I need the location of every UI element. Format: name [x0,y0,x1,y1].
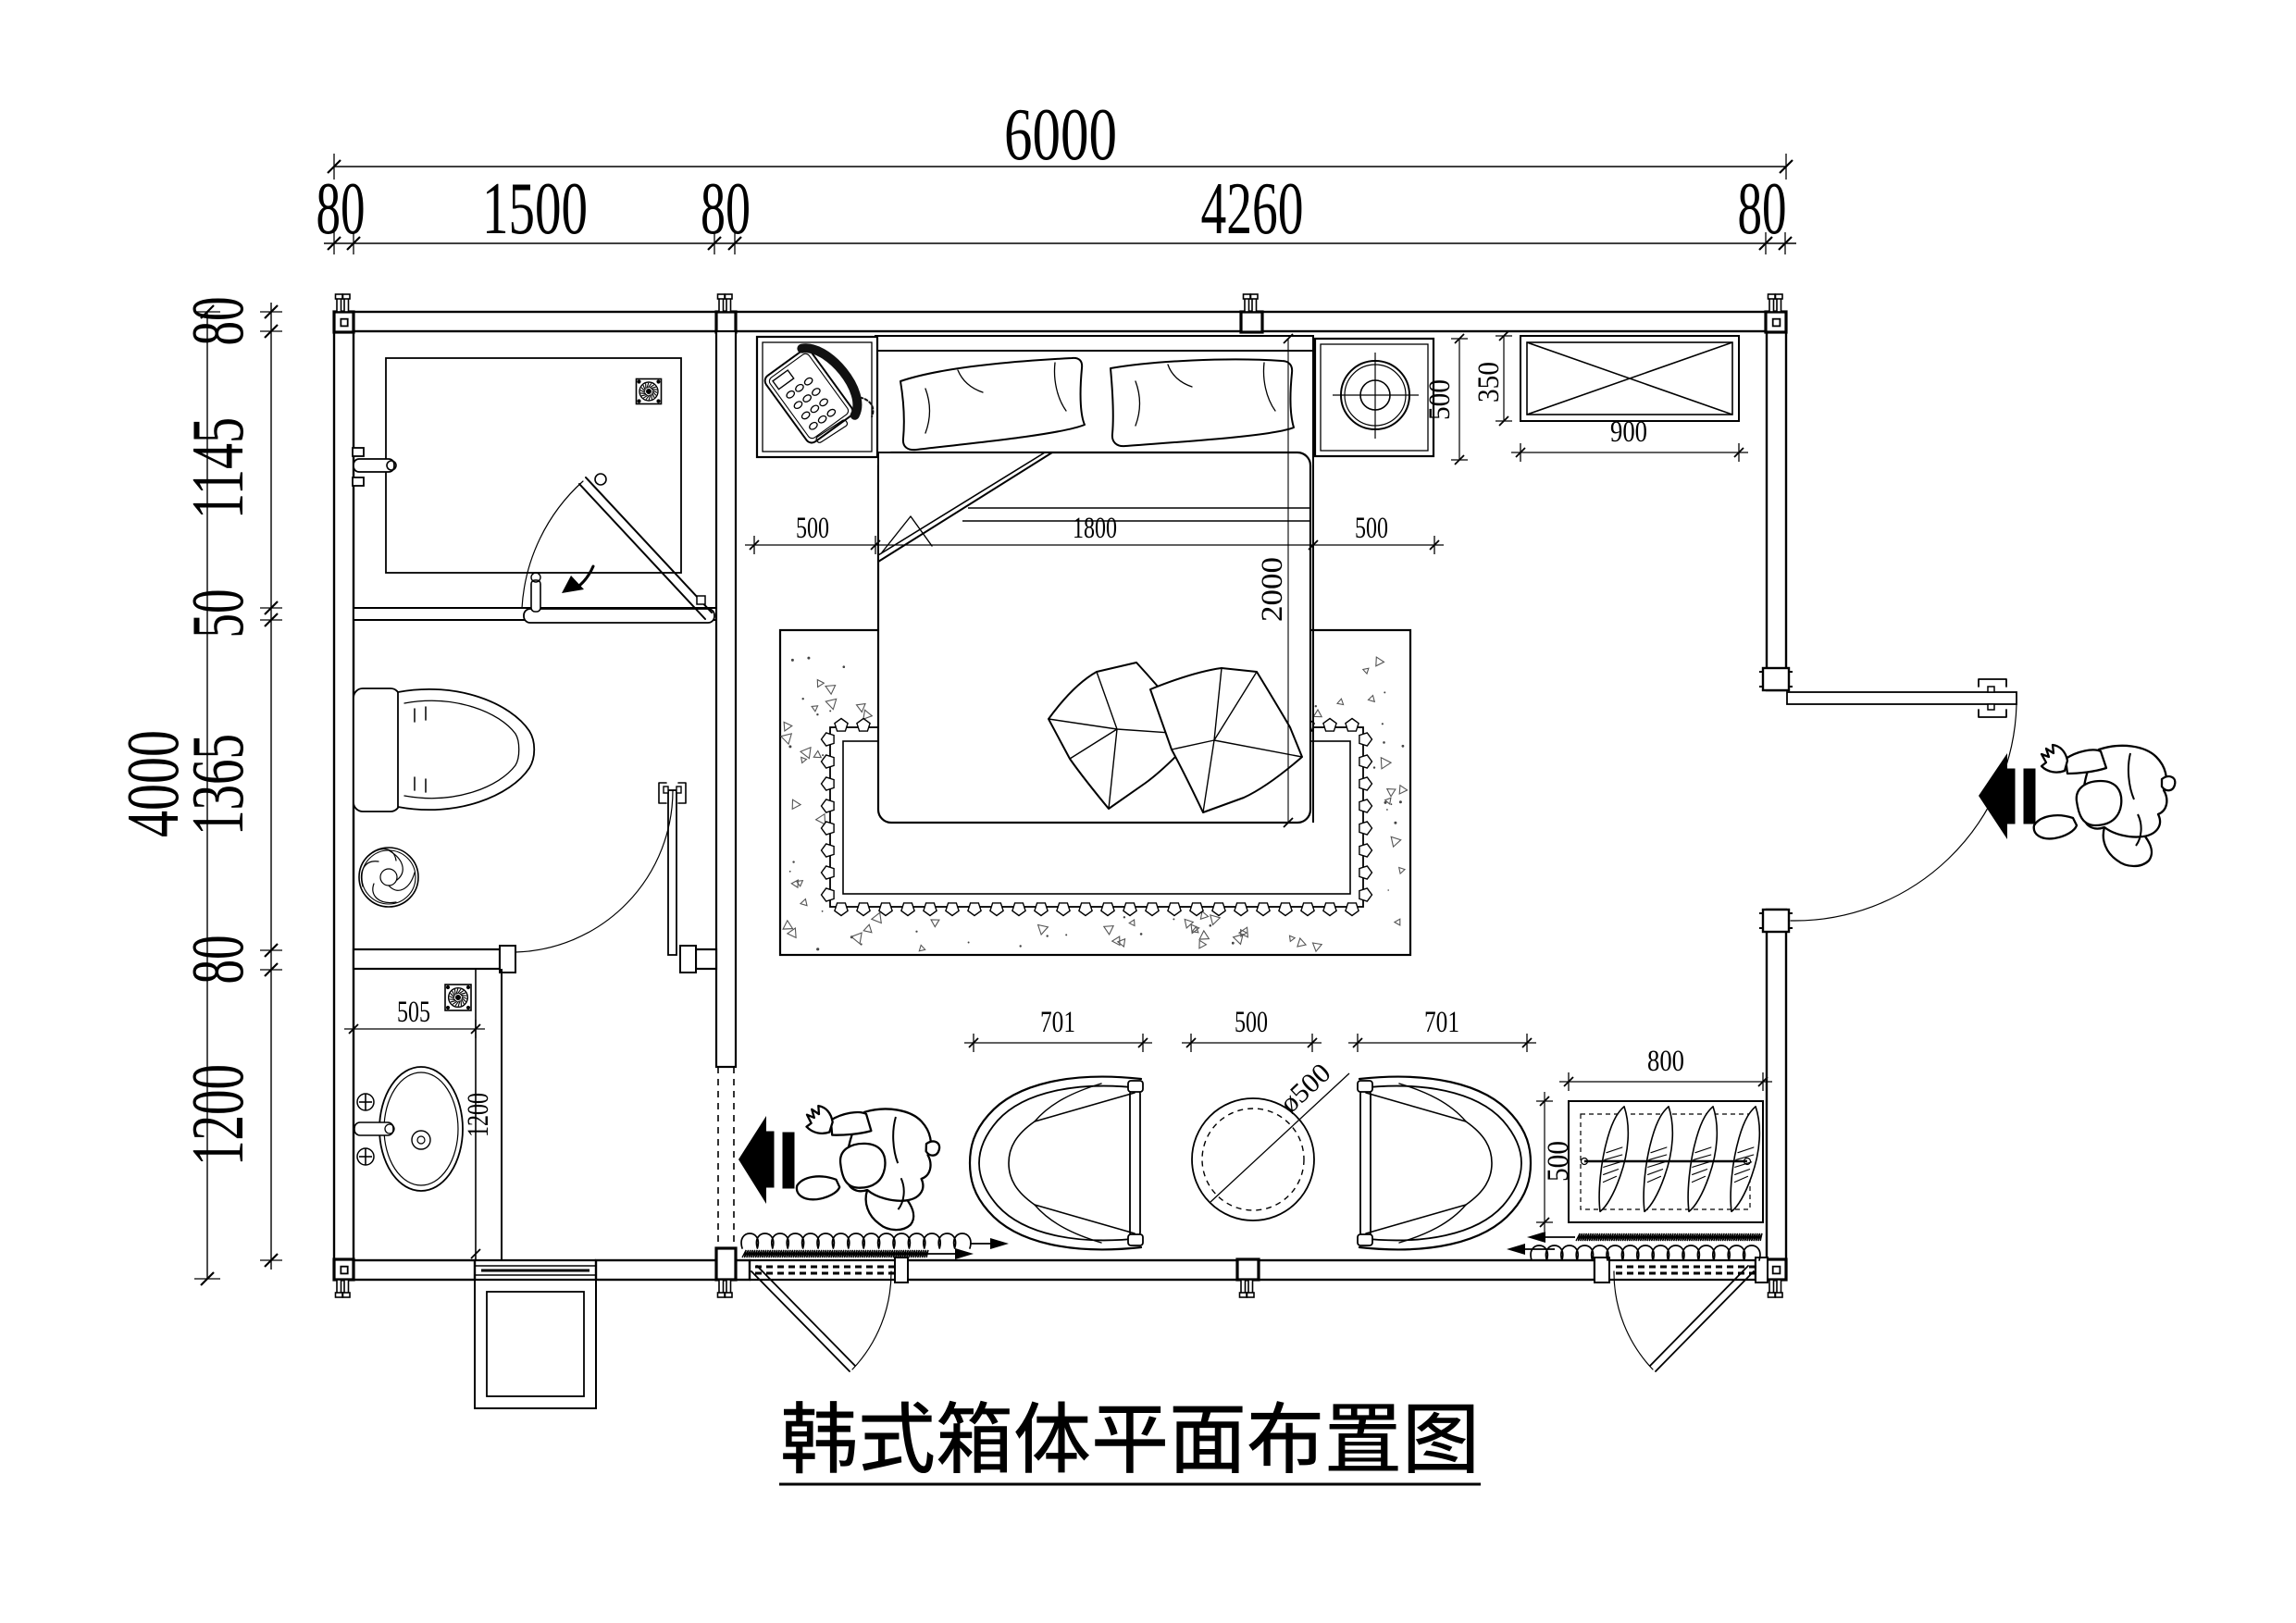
svg-text:500: 500 [1423,379,1457,420]
svg-text:1145: 1145 [178,417,259,519]
svg-text:500: 500 [1235,1006,1268,1039]
svg-text:2000: 2000 [1256,557,1289,622]
svg-text:900: 900 [1610,415,1647,449]
svg-text:1200: 1200 [462,1093,495,1137]
svg-text:80: 80 [178,935,259,985]
svg-text:500: 500 [796,512,829,545]
svg-text:701: 701 [1040,1006,1075,1039]
svg-text:6000: 6000 [1004,94,1117,176]
svg-text:1365: 1365 [178,734,259,836]
svg-text:500: 500 [1542,1141,1575,1182]
svg-text:50: 50 [178,589,259,638]
svg-text:500: 500 [1355,512,1388,545]
svg-text:1500: 1500 [482,168,588,250]
svg-text:800: 800 [1647,1045,1684,1078]
svg-text:505: 505 [397,996,430,1029]
svg-text:80: 80 [178,297,259,346]
svg-text:80: 80 [1738,168,1787,250]
svg-text:1200: 1200 [178,1064,259,1166]
svg-text:350: 350 [1472,362,1506,403]
svg-text:701: 701 [1424,1006,1459,1039]
svg-text:4260: 4260 [1201,168,1304,250]
svg-text:80: 80 [701,168,751,250]
svg-text:1800: 1800 [1073,512,1117,545]
